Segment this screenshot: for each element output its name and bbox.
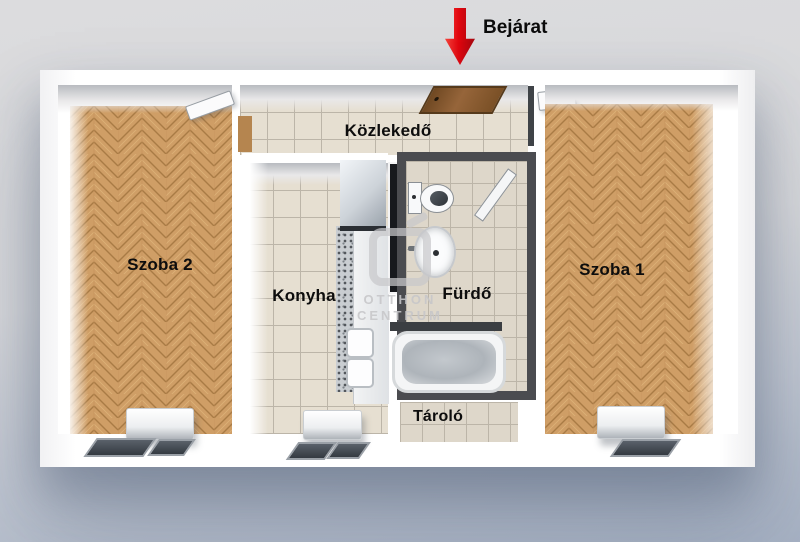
kitchen-sink — [346, 358, 374, 388]
bathtub-shelf — [390, 322, 502, 331]
floorplan: Közlekedő Szoba 2 Konyha Fürdő Szoba 1 T… — [40, 70, 755, 467]
entrance-arrow-icon — [445, 8, 475, 65]
hallway-label: Közlekedő — [345, 121, 432, 141]
bathtub — [392, 331, 506, 393]
bathroom-label: Fürdő — [442, 284, 491, 304]
room2-label: Szoba 2 — [127, 255, 193, 275]
doorway-threshold — [238, 116, 252, 152]
fridge — [340, 160, 386, 231]
toilet — [420, 184, 454, 213]
window-pane — [610, 439, 682, 457]
window-pane — [147, 439, 196, 456]
wall-shading — [692, 85, 738, 434]
wall-shading — [242, 163, 268, 434]
entrance-door — [419, 86, 508, 114]
radiator — [597, 406, 665, 439]
storage-label: Tároló — [413, 408, 463, 426]
entrance-annotation: Bejárat — [445, 8, 625, 78]
window-pane — [83, 438, 156, 457]
radiator — [126, 408, 194, 440]
wall-shading — [545, 85, 738, 111]
room1-door-frame — [528, 86, 534, 146]
wall-shading — [58, 85, 88, 434]
kitchen-sink — [346, 328, 374, 358]
room1-label: Szoba 1 — [579, 260, 645, 280]
radiator — [303, 410, 362, 440]
entrance-label: Bejárat — [483, 17, 547, 39]
kitchen-label: Konyha — [272, 286, 336, 306]
washbasin — [414, 226, 456, 278]
floorplan-scene: Bejárat — [0, 0, 800, 542]
